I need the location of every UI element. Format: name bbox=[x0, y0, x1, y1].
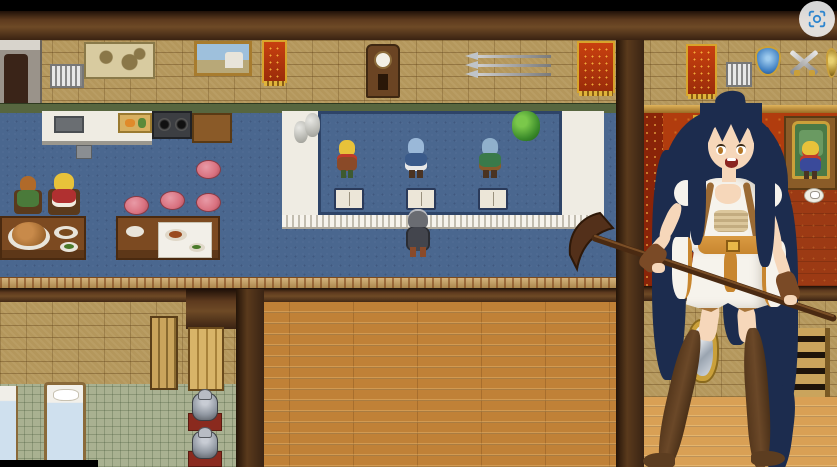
wood-pillar bbox=[150, 316, 178, 390]
stool bbox=[196, 160, 221, 179]
screenshot-button[interactable] bbox=[799, 1, 835, 37]
teeth bbox=[727, 158, 736, 161]
crossed-swords bbox=[786, 46, 822, 80]
boot-right-foot bbox=[751, 451, 785, 466]
dinner-plate bbox=[165, 229, 187, 241]
hall-beam bbox=[0, 288, 625, 303]
hair-sidelock-right bbox=[755, 127, 775, 267]
hearth-firebox bbox=[4, 54, 28, 106]
hand-right bbox=[784, 295, 797, 305]
teacup-plate bbox=[126, 226, 144, 237]
hair-sidelock-left bbox=[688, 125, 706, 245]
heroine-portrait bbox=[555, 85, 837, 467]
guest-book[interactable] bbox=[406, 188, 436, 210]
hand-left bbox=[652, 263, 665, 273]
guest-book[interactable] bbox=[478, 188, 508, 210]
armor-helmet bbox=[198, 427, 212, 438]
guest-book[interactable] bbox=[334, 188, 364, 210]
kitchen-sink bbox=[54, 116, 84, 133]
npc-clerk-bluehair[interactable] bbox=[404, 138, 428, 178]
player-character[interactable] bbox=[404, 209, 432, 257]
armor-stand-1[interactable] bbox=[184, 391, 224, 431]
salad bbox=[64, 244, 74, 249]
top-black-bar bbox=[0, 0, 837, 11]
stool bbox=[196, 193, 221, 212]
neck bbox=[722, 168, 736, 182]
world-map bbox=[84, 42, 155, 79]
bed[interactable] bbox=[44, 382, 86, 467]
divider-wall bbox=[236, 289, 264, 467]
sword-hilt bbox=[809, 70, 815, 76]
stove bbox=[152, 111, 192, 139]
eye-right bbox=[736, 144, 746, 155]
stove-burner bbox=[175, 118, 188, 131]
iris bbox=[738, 147, 743, 154]
food-plate bbox=[54, 226, 78, 239]
clock-face bbox=[374, 51, 392, 69]
spear-tip bbox=[465, 52, 478, 60]
armor-helmet bbox=[198, 389, 212, 400]
vegetables bbox=[138, 118, 146, 128]
bottom-black-strip bbox=[0, 460, 98, 467]
red-banner-small bbox=[262, 40, 287, 83]
stool bbox=[160, 191, 185, 210]
painting-castle bbox=[225, 52, 243, 68]
iris bbox=[718, 147, 723, 154]
game-viewport[interactable] bbox=[0, 0, 837, 467]
sword-hilt bbox=[794, 70, 800, 76]
spear bbox=[477, 55, 551, 58]
npc-clerk-greencoat[interactable] bbox=[478, 138, 502, 178]
spear bbox=[477, 64, 551, 67]
door[interactable] bbox=[188, 327, 224, 391]
barred-window-1 bbox=[50, 64, 84, 88]
dining-table-2 bbox=[116, 216, 220, 260]
food bbox=[59, 229, 73, 236]
stove-burner bbox=[158, 118, 171, 131]
tablecloth bbox=[158, 222, 212, 258]
vegetables bbox=[125, 119, 135, 127]
ceiling-beam bbox=[0, 11, 837, 40]
face bbox=[708, 122, 754, 170]
mouth-open bbox=[725, 158, 738, 168]
eye-left bbox=[716, 144, 726, 155]
salad bbox=[192, 245, 201, 249]
spear-rack bbox=[465, 53, 553, 79]
bed-partial bbox=[0, 386, 18, 467]
salad-plate bbox=[60, 242, 78, 252]
grandfather-clock bbox=[366, 44, 400, 98]
npc-diner-blonde[interactable] bbox=[50, 173, 78, 215]
spear bbox=[477, 73, 551, 76]
side-table bbox=[192, 113, 232, 143]
food bbox=[169, 231, 182, 238]
salad-plate bbox=[189, 243, 205, 252]
hearth-mantel bbox=[0, 40, 40, 50]
npc-clerk-blonde[interactable] bbox=[336, 140, 358, 178]
jug bbox=[305, 113, 320, 137]
pillow bbox=[53, 389, 79, 401]
spear-tip bbox=[465, 70, 478, 78]
dining-table-1 bbox=[0, 216, 86, 260]
npc-diner-redhead[interactable] bbox=[16, 176, 40, 214]
water-jugs bbox=[294, 113, 320, 145]
screen-capture-icon bbox=[806, 8, 828, 30]
clock-pendulum-window bbox=[378, 74, 388, 90]
spear-tip bbox=[465, 61, 478, 69]
stool bbox=[124, 196, 149, 215]
barred-window-2 bbox=[726, 62, 752, 87]
landscape-painting bbox=[194, 41, 252, 76]
armor-stand-2[interactable] bbox=[184, 431, 224, 467]
potted-bush bbox=[512, 111, 540, 141]
counter-drawer bbox=[76, 145, 92, 159]
boot-left-foot bbox=[643, 453, 675, 467]
cutting-board bbox=[118, 113, 152, 133]
roast-turkey bbox=[12, 222, 46, 246]
